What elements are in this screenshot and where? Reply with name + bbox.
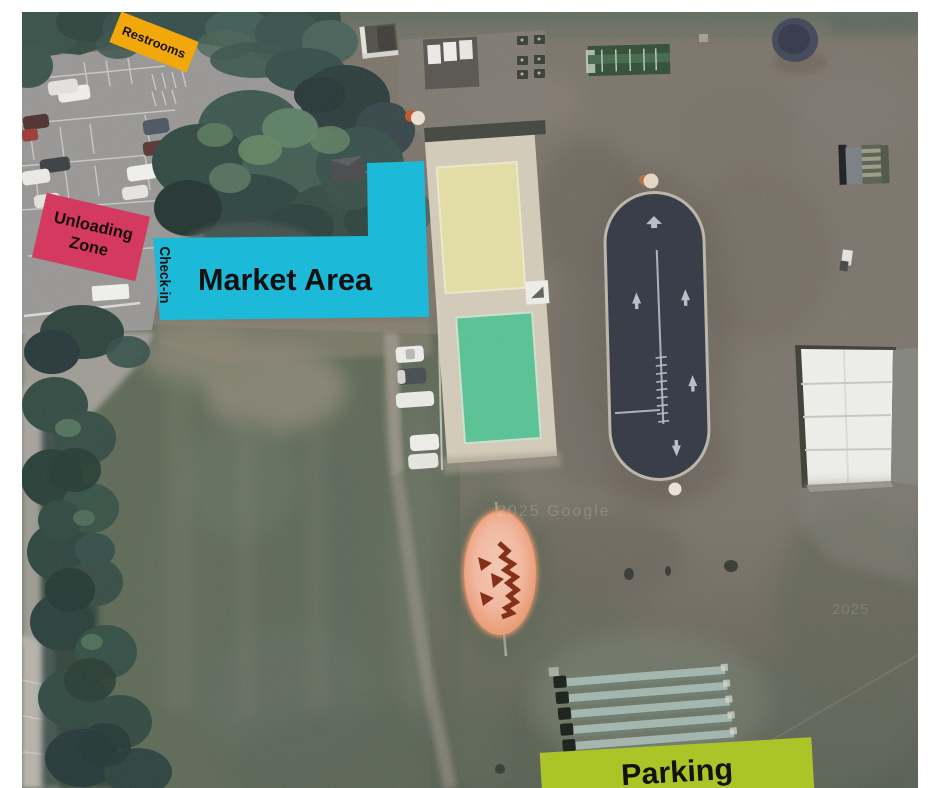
svg-text:Check-in: Check-in xyxy=(156,247,173,304)
svg-text:Market Area: Market Area xyxy=(198,262,373,297)
svg-text:2025 Google: 2025 Google xyxy=(497,503,611,520)
svg-text:Parking: Parking xyxy=(620,753,734,788)
svg-text:2025: 2025 xyxy=(832,601,869,618)
